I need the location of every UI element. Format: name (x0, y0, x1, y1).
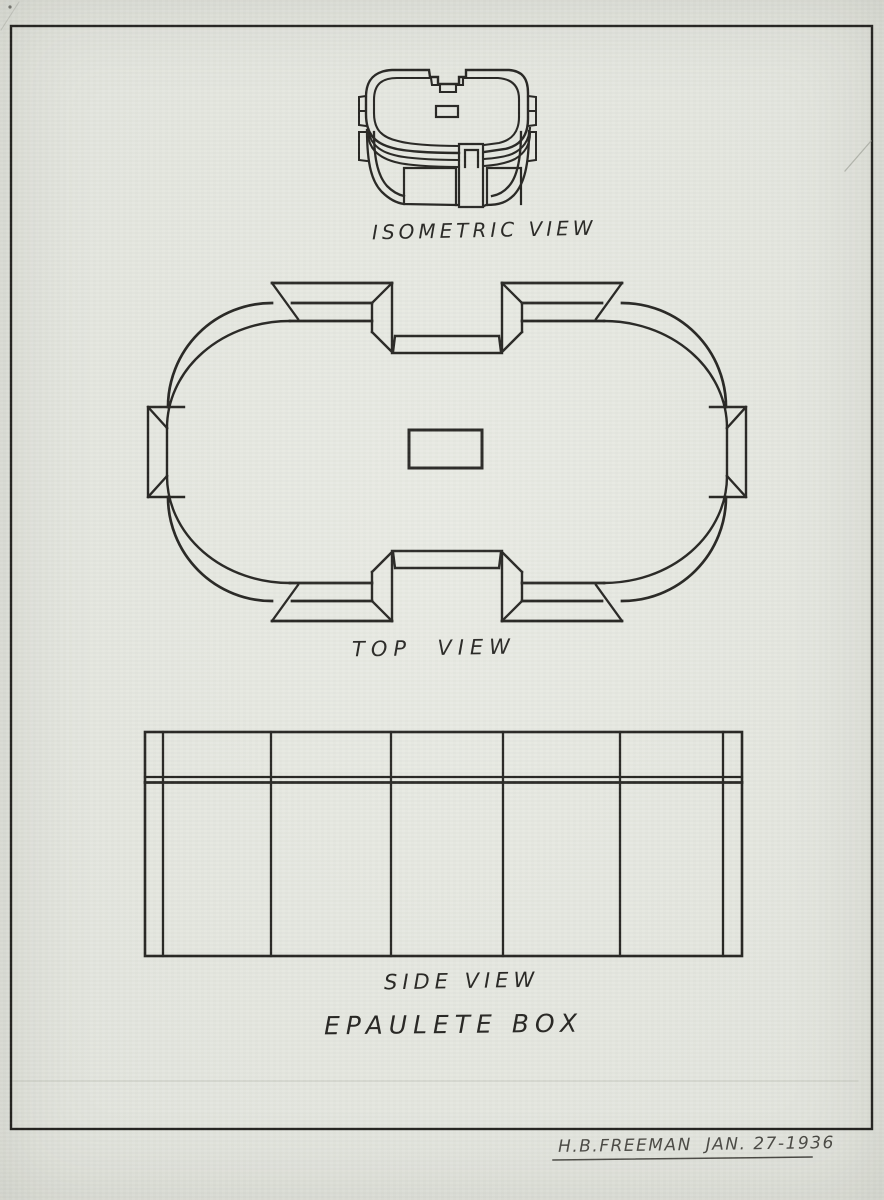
top-view-drawing (148, 283, 746, 621)
top-view-label: TOP VIEW (352, 637, 516, 661)
isometric-view-label: ISOMETRIC VIEW (372, 218, 597, 243)
side-view-drawing (145, 732, 742, 956)
signature-underline (553, 1157, 812, 1160)
paper-marks (1, 2, 871, 1081)
drawing-title: EPAULETE BOX (324, 1011, 583, 1039)
side-view-label: SIDE VIEW (384, 970, 540, 994)
sheet-border (11, 26, 872, 1129)
drawing-sheet: ISOMETRIC VIEW TOP VIEW SIDE VIEW EPAULE… (0, 0, 884, 1200)
signature-text: H.B.FREEMAN JAN. 27-1936 (558, 1135, 835, 1156)
isometric-view-drawing (359, 70, 536, 207)
